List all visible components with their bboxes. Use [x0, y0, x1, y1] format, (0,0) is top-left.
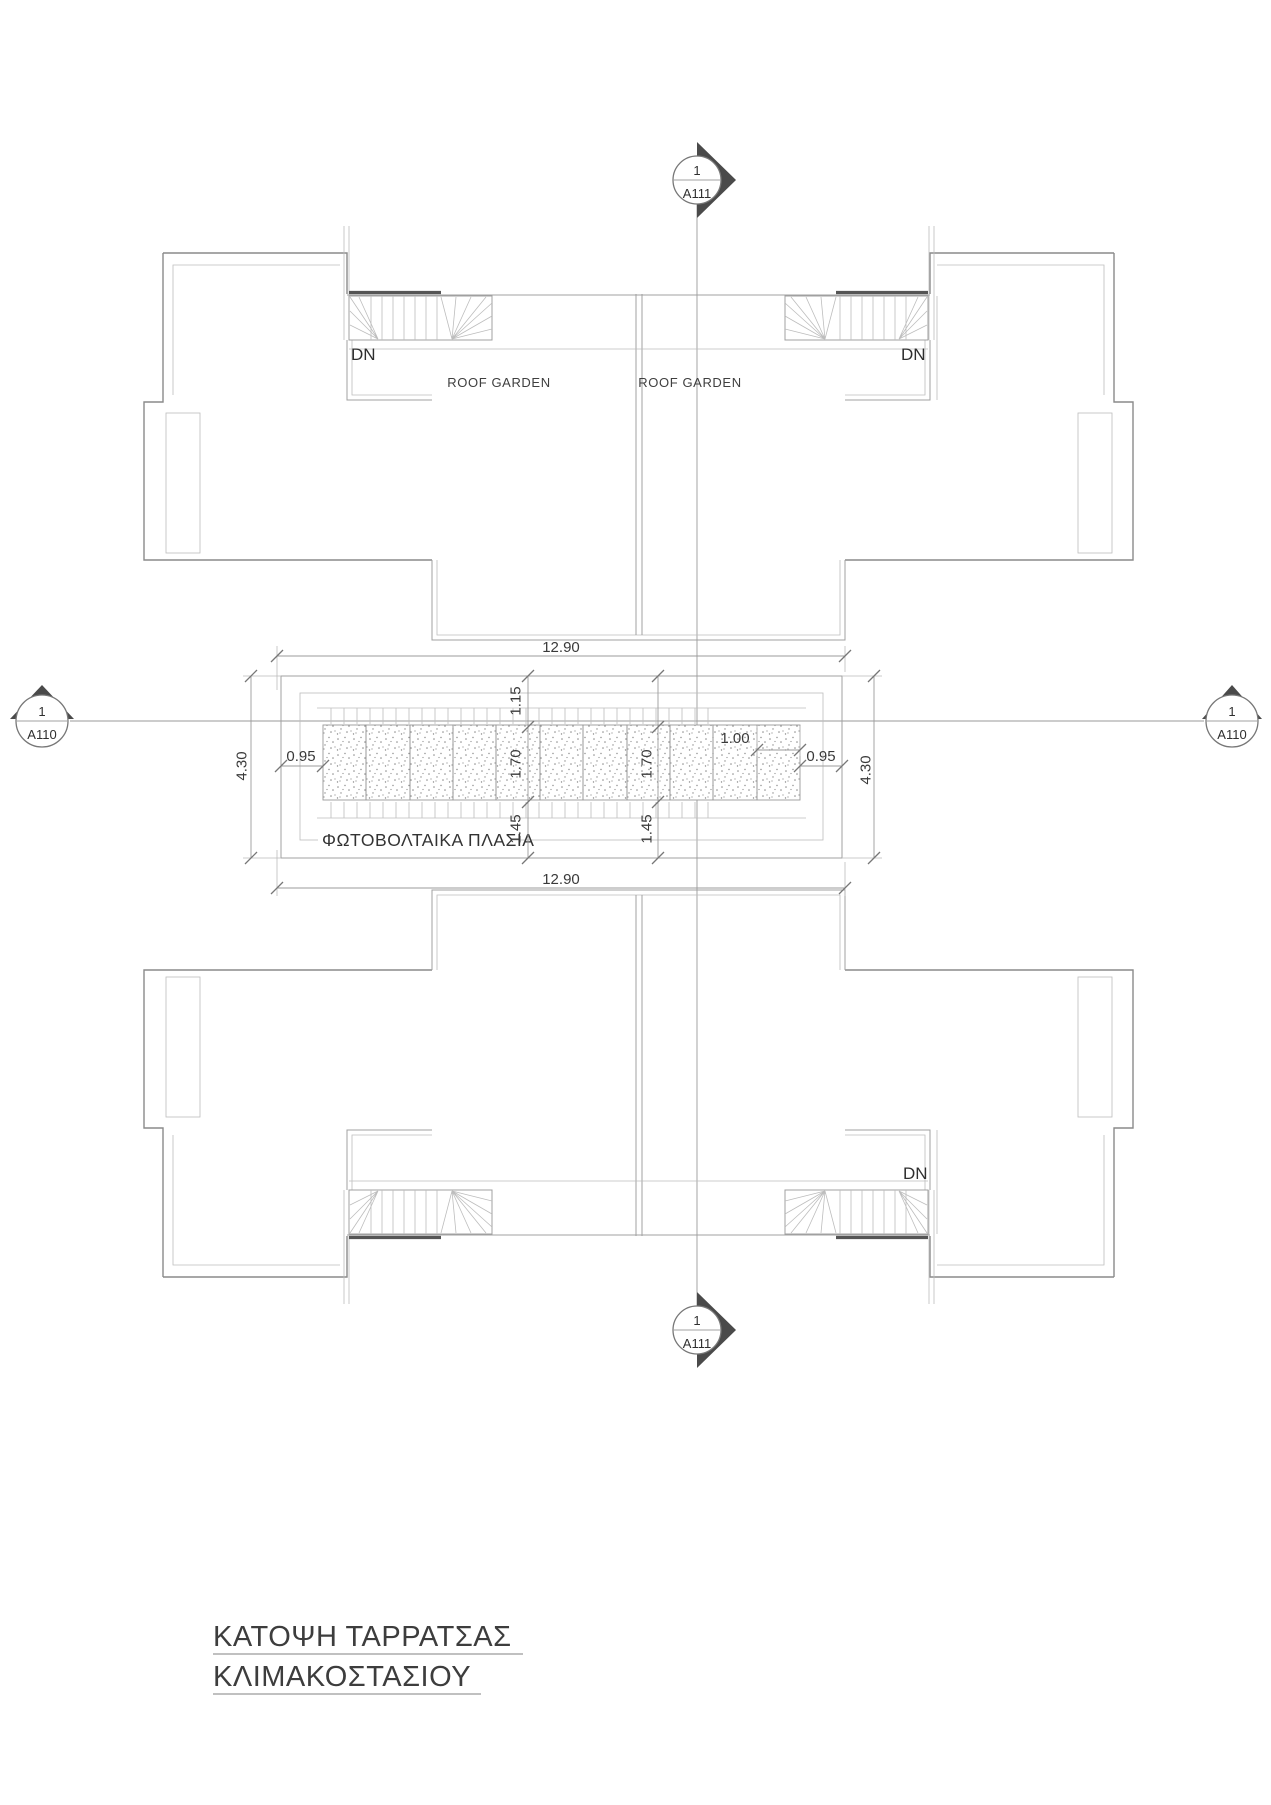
- bottom-wing-left-notch: [166, 977, 200, 1117]
- stair-treads: [840, 1190, 906, 1234]
- bottom-wing-bottom-edge: [163, 1236, 1114, 1277]
- stair-top-left: [349, 293, 492, 341]
- stair-outline: [349, 296, 492, 340]
- sheet-number: A110: [1217, 727, 1246, 742]
- stair-treads: [371, 1190, 437, 1234]
- detail-number: 1: [38, 704, 45, 719]
- dim-offset-bottom-right: 1.45: [639, 814, 656, 843]
- top-wing-right-edge: [845, 253, 1133, 560]
- dim-strip-width-top: 12.90: [542, 639, 580, 656]
- detail-number: 1: [1228, 704, 1235, 719]
- top-wing-parapet-right: [937, 265, 1104, 395]
- bottom-garden-step-left-inner: [352, 1135, 432, 1190]
- photovoltaic-strip: ΦΩΤΟΒΟΛΤΑΙΚΑ ΠΛΑΣΙΑ: [281, 676, 842, 858]
- roof-plan-drawing: DN DN ROOF GARDEN ROOF GARDEN: [0, 0, 1271, 1805]
- stair-winder-left: [785, 1191, 836, 1233]
- dim-edge-gap-right: 0.95: [806, 748, 835, 765]
- stair-outline: [785, 1190, 928, 1234]
- dim-offset-bottom-left: 1.45: [508, 814, 525, 843]
- sheet-number: A111: [683, 186, 711, 201]
- pv-panels-label: ΦΩΤΟΒΟΛΤΑΙΚΑ ΠΛΑΣΙΑ: [322, 830, 534, 850]
- dim-strip-height-right: 4.30: [858, 755, 875, 784]
- stair-winder-left: [350, 297, 378, 339]
- stair-winder-right: [899, 297, 927, 339]
- roof-garden-label-left: ROOF GARDEN: [447, 375, 550, 390]
- sheet-number: A111: [683, 1336, 711, 1351]
- dn-label-top-left: DN: [351, 345, 376, 364]
- top-wing: DN DN ROOF GARDEN ROOF GARDEN: [144, 226, 1133, 640]
- bottom-wing-parapet-right: [937, 1135, 1104, 1265]
- stair-winder-right: [441, 297, 492, 339]
- detail-number: 1: [693, 163, 700, 178]
- pv-panel: [583, 725, 627, 800]
- top-wing-lower-roof-inner: [437, 560, 840, 635]
- stair-bottom-right: [785, 1190, 928, 1238]
- stair-winder-right: [899, 1191, 927, 1233]
- dn-label-top-right: DN: [901, 345, 926, 364]
- dim-panel-width: 1.00: [720, 730, 749, 747]
- top-wing-lower-roof-edge: [432, 560, 845, 640]
- bottom-wing: DN: [144, 890, 1133, 1304]
- stair-bottom-left: [349, 1190, 492, 1238]
- bottom-wing-parapet-left: [173, 1135, 340, 1265]
- stair-outline: [349, 1190, 492, 1234]
- section-marker-right-a110: 1 A110: [1202, 685, 1262, 747]
- bottom-wing-right-edge: [845, 970, 1133, 1277]
- drawing-title-line1: ΚΑΤΟΨΗ ΤΑΡΡΑΤΣΑΣ: [213, 1621, 512, 1653]
- pv-panel: [410, 725, 453, 800]
- top-party-wall: [636, 294, 642, 635]
- stair-treads: [371, 296, 437, 340]
- drawing-title-line2: ΚΛΙΜΑΚΟΣΤΑΣΙΟΥ: [213, 1661, 471, 1693]
- stair-top-right: [785, 293, 928, 341]
- dim-strip-height-left: 4.30: [234, 751, 251, 780]
- bottom-wing-left-edge: [144, 970, 432, 1277]
- dim-panel-height-right: 1.70: [639, 749, 656, 778]
- dim-strip-width-bottom: 12.90: [542, 871, 580, 888]
- top-wing-right-notch: [1078, 413, 1112, 553]
- stair-treads: [840, 296, 906, 340]
- pv-panel: [453, 725, 496, 800]
- dim-panel-height-left: 1.70: [508, 749, 525, 778]
- bottom-wing-lower-roof-edge: [432, 890, 845, 970]
- stair-winder-left: [350, 1191, 378, 1233]
- pv-panel: [670, 725, 713, 800]
- stair-outline: [785, 296, 928, 340]
- section-marker-left-a110: 1 A110: [10, 685, 74, 747]
- section-marker-bottom-a111: 1 A111: [673, 1292, 736, 1368]
- section-marker-top-a111: 1 A111: [673, 142, 736, 218]
- bottom-wing-lower-roof-inner: [437, 895, 840, 970]
- stair-winder-right: [441, 1191, 492, 1233]
- sheet-number: A110: [27, 727, 56, 742]
- drawing-sheet: DN DN ROOF GARDEN ROOF GARDEN: [0, 0, 1271, 1805]
- detail-number: 1: [693, 1313, 700, 1328]
- pv-panel: [540, 725, 583, 800]
- bottom-party-wall: [636, 895, 642, 1236]
- pv-panel: [323, 725, 366, 800]
- top-wing-top-edge: [163, 253, 1114, 294]
- top-wing-left-edge: [144, 253, 432, 560]
- title-block: ΚΑΤΟΨΗ ΤΑΡΡΑΤΣΑΣ ΚΛΙΜΑΚΟΣΤΑΣΙΟΥ: [213, 1621, 523, 1694]
- dim-offset-top: 1.15: [508, 686, 525, 715]
- top-wing-parapet-left: [173, 265, 340, 395]
- top-wing-left-notch: [166, 413, 200, 553]
- stair-winder-left: [785, 297, 836, 339]
- dim-edge-gap-left: 0.95: [286, 748, 315, 765]
- pv-panel: [366, 725, 410, 800]
- pv-panel: [757, 725, 800, 800]
- roof-garden-label-right: ROOF GARDEN: [638, 375, 741, 390]
- dn-label-bottom-right: DN: [903, 1164, 928, 1183]
- bottom-wing-right-notch: [1078, 977, 1112, 1117]
